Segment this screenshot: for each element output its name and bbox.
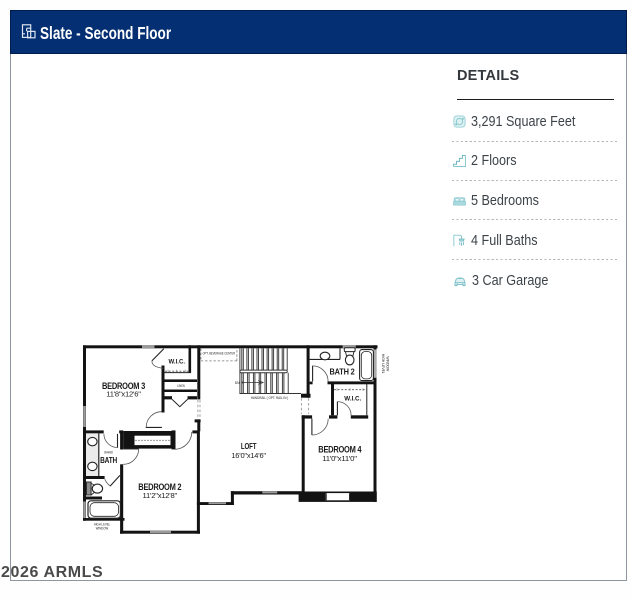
svg-text:W.I.C.: W.I.C. bbox=[169, 360, 186, 366]
svg-text:SHARED: SHARED bbox=[104, 451, 113, 455]
svg-text:16'0"x14'6": 16'0"x14'6" bbox=[231, 453, 266, 460]
svg-text:WINDOW: WINDOW bbox=[385, 356, 389, 372]
svg-text:W.I.C.: W.I.C. bbox=[344, 397, 361, 403]
svg-text:HANDRAIL ( OPT. RAIL IN ): HANDRAIL ( OPT. RAIL IN ) bbox=[251, 396, 289, 400]
svg-text:DN: DN bbox=[235, 381, 240, 385]
svg-text:11'8"x12'6": 11'8"x12'6" bbox=[106, 391, 141, 398]
svg-text:WINDOW: WINDOW bbox=[96, 527, 109, 531]
svg-text:BEDROOM 2: BEDROOM 2 bbox=[138, 482, 181, 492]
svg-text:LOFT: LOFT bbox=[241, 442, 257, 451]
svg-text:11'0"x11'0": 11'0"x11'0" bbox=[322, 456, 357, 463]
svg-text:OPT. BEVERAGE CENTER: OPT. BEVERAGE CENTER bbox=[203, 352, 236, 356]
svg-text:HIGH LEVEL: HIGH LEVEL bbox=[381, 354, 385, 374]
svg-text:BEDROOM 3: BEDROOM 3 bbox=[102, 381, 145, 391]
svg-text:BATH: BATH bbox=[100, 456, 117, 465]
svg-text:11'2"x12'8": 11'2"x12'8" bbox=[143, 493, 178, 500]
svg-text:BATH 2: BATH 2 bbox=[330, 367, 356, 376]
svg-text:LINEN: LINEN bbox=[177, 384, 185, 388]
svg-text:BEDROOM 4: BEDROOM 4 bbox=[318, 444, 361, 454]
